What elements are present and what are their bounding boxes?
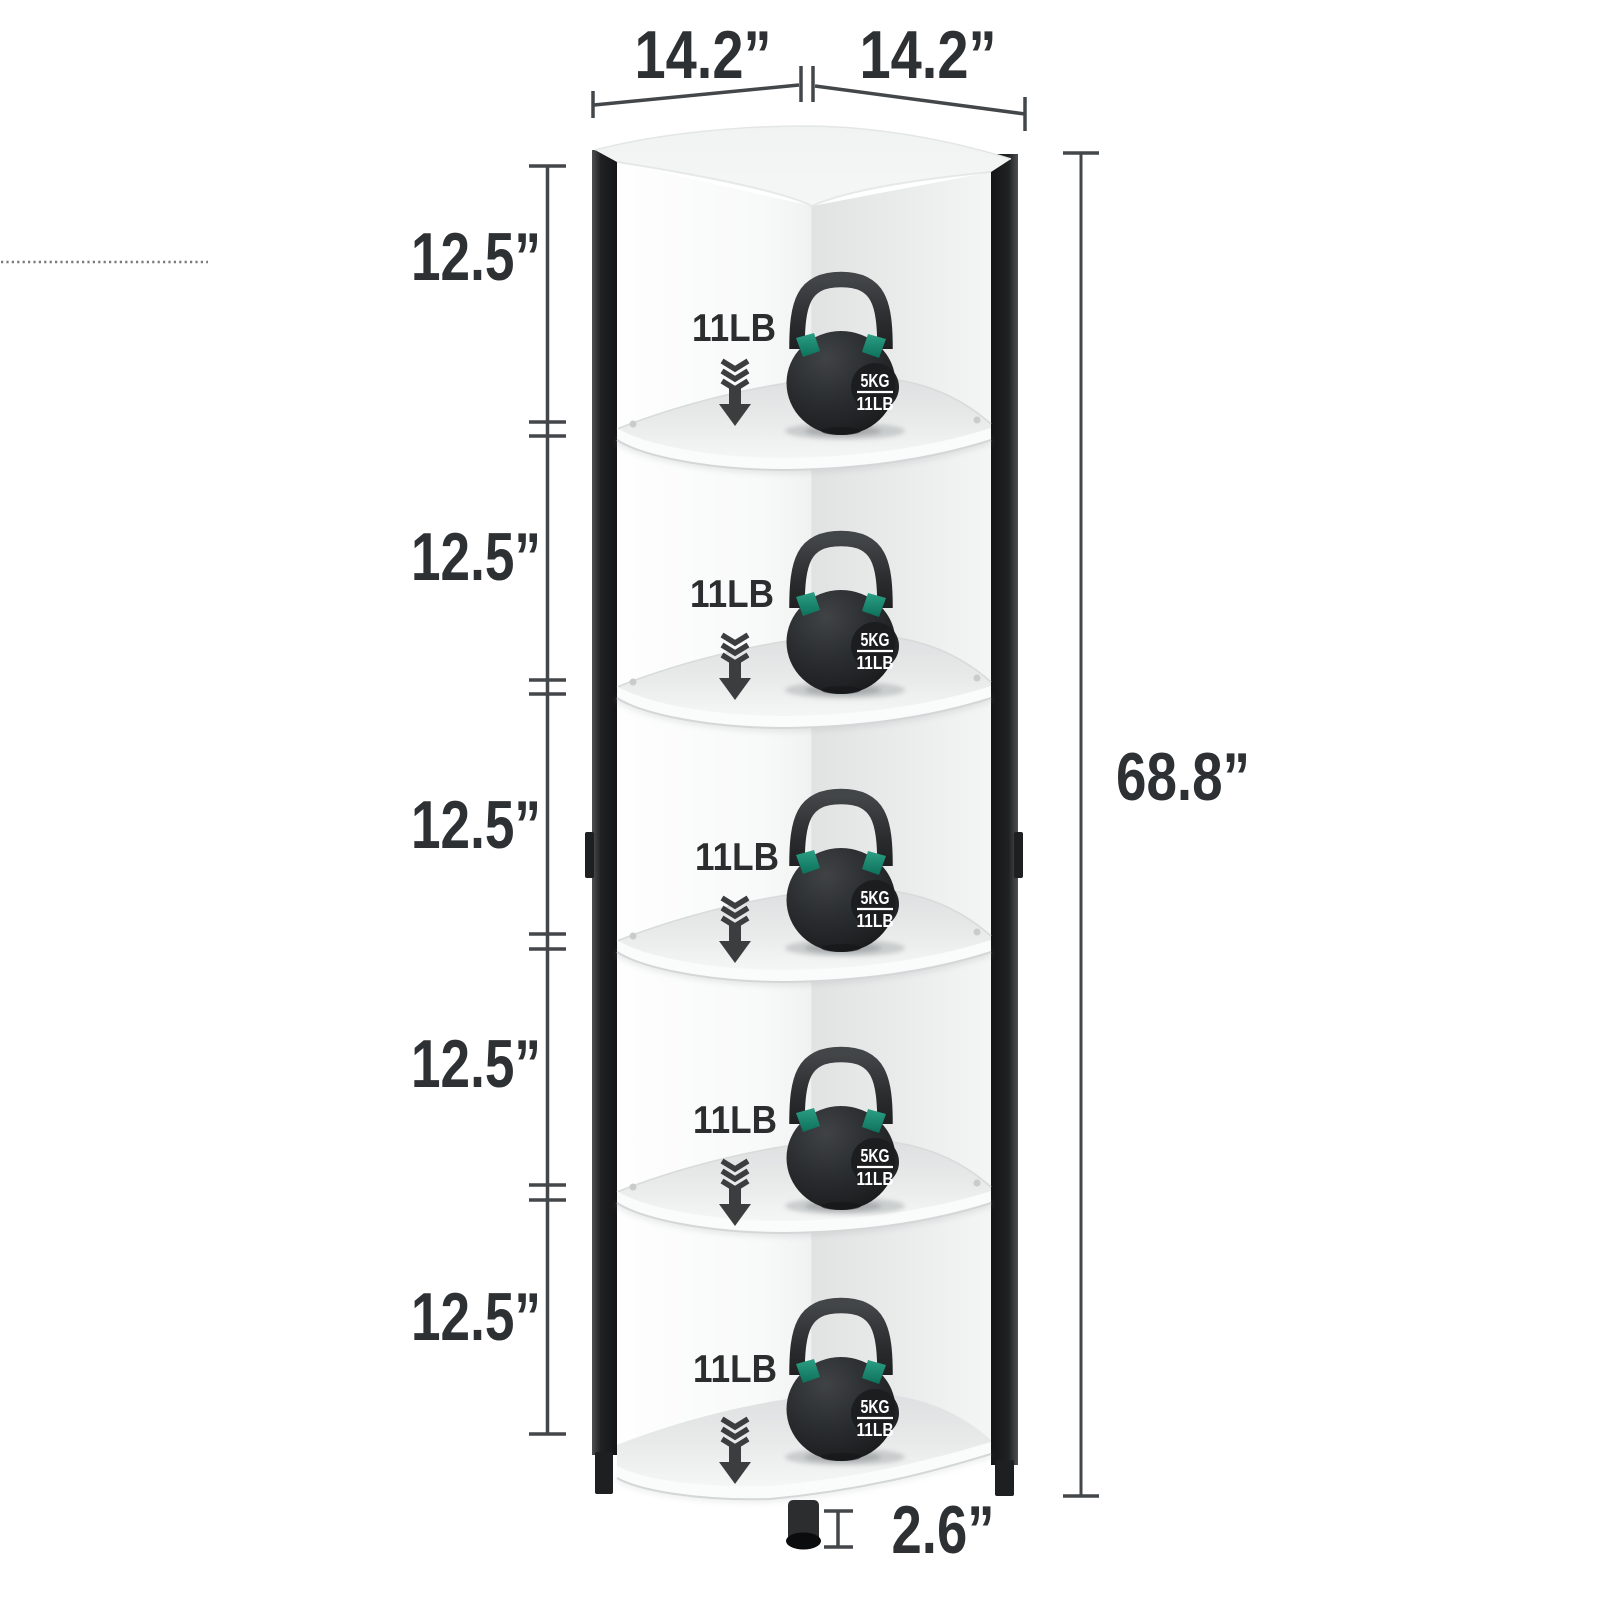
svg-text:68.8”: 68.8” <box>1116 739 1250 815</box>
svg-text:11LB: 11LB <box>695 836 779 879</box>
svg-text:12.5”: 12.5” <box>411 519 541 595</box>
svg-text:12.5”: 12.5” <box>411 1026 541 1102</box>
svg-text:11LB: 11LB <box>693 1099 777 1142</box>
svg-text:12.5”: 12.5” <box>411 787 541 863</box>
svg-text:2.6”: 2.6” <box>892 1492 995 1568</box>
svg-text:11LB: 11LB <box>693 1348 777 1391</box>
svg-text:14.2”: 14.2” <box>860 17 997 93</box>
svg-text:12.5”: 12.5” <box>411 219 541 295</box>
svg-text:11LB: 11LB <box>690 573 774 616</box>
svg-text:14.2”: 14.2” <box>635 17 772 93</box>
svg-text:11LB: 11LB <box>692 307 776 350</box>
svg-text:12.5”: 12.5” <box>411 1279 541 1355</box>
